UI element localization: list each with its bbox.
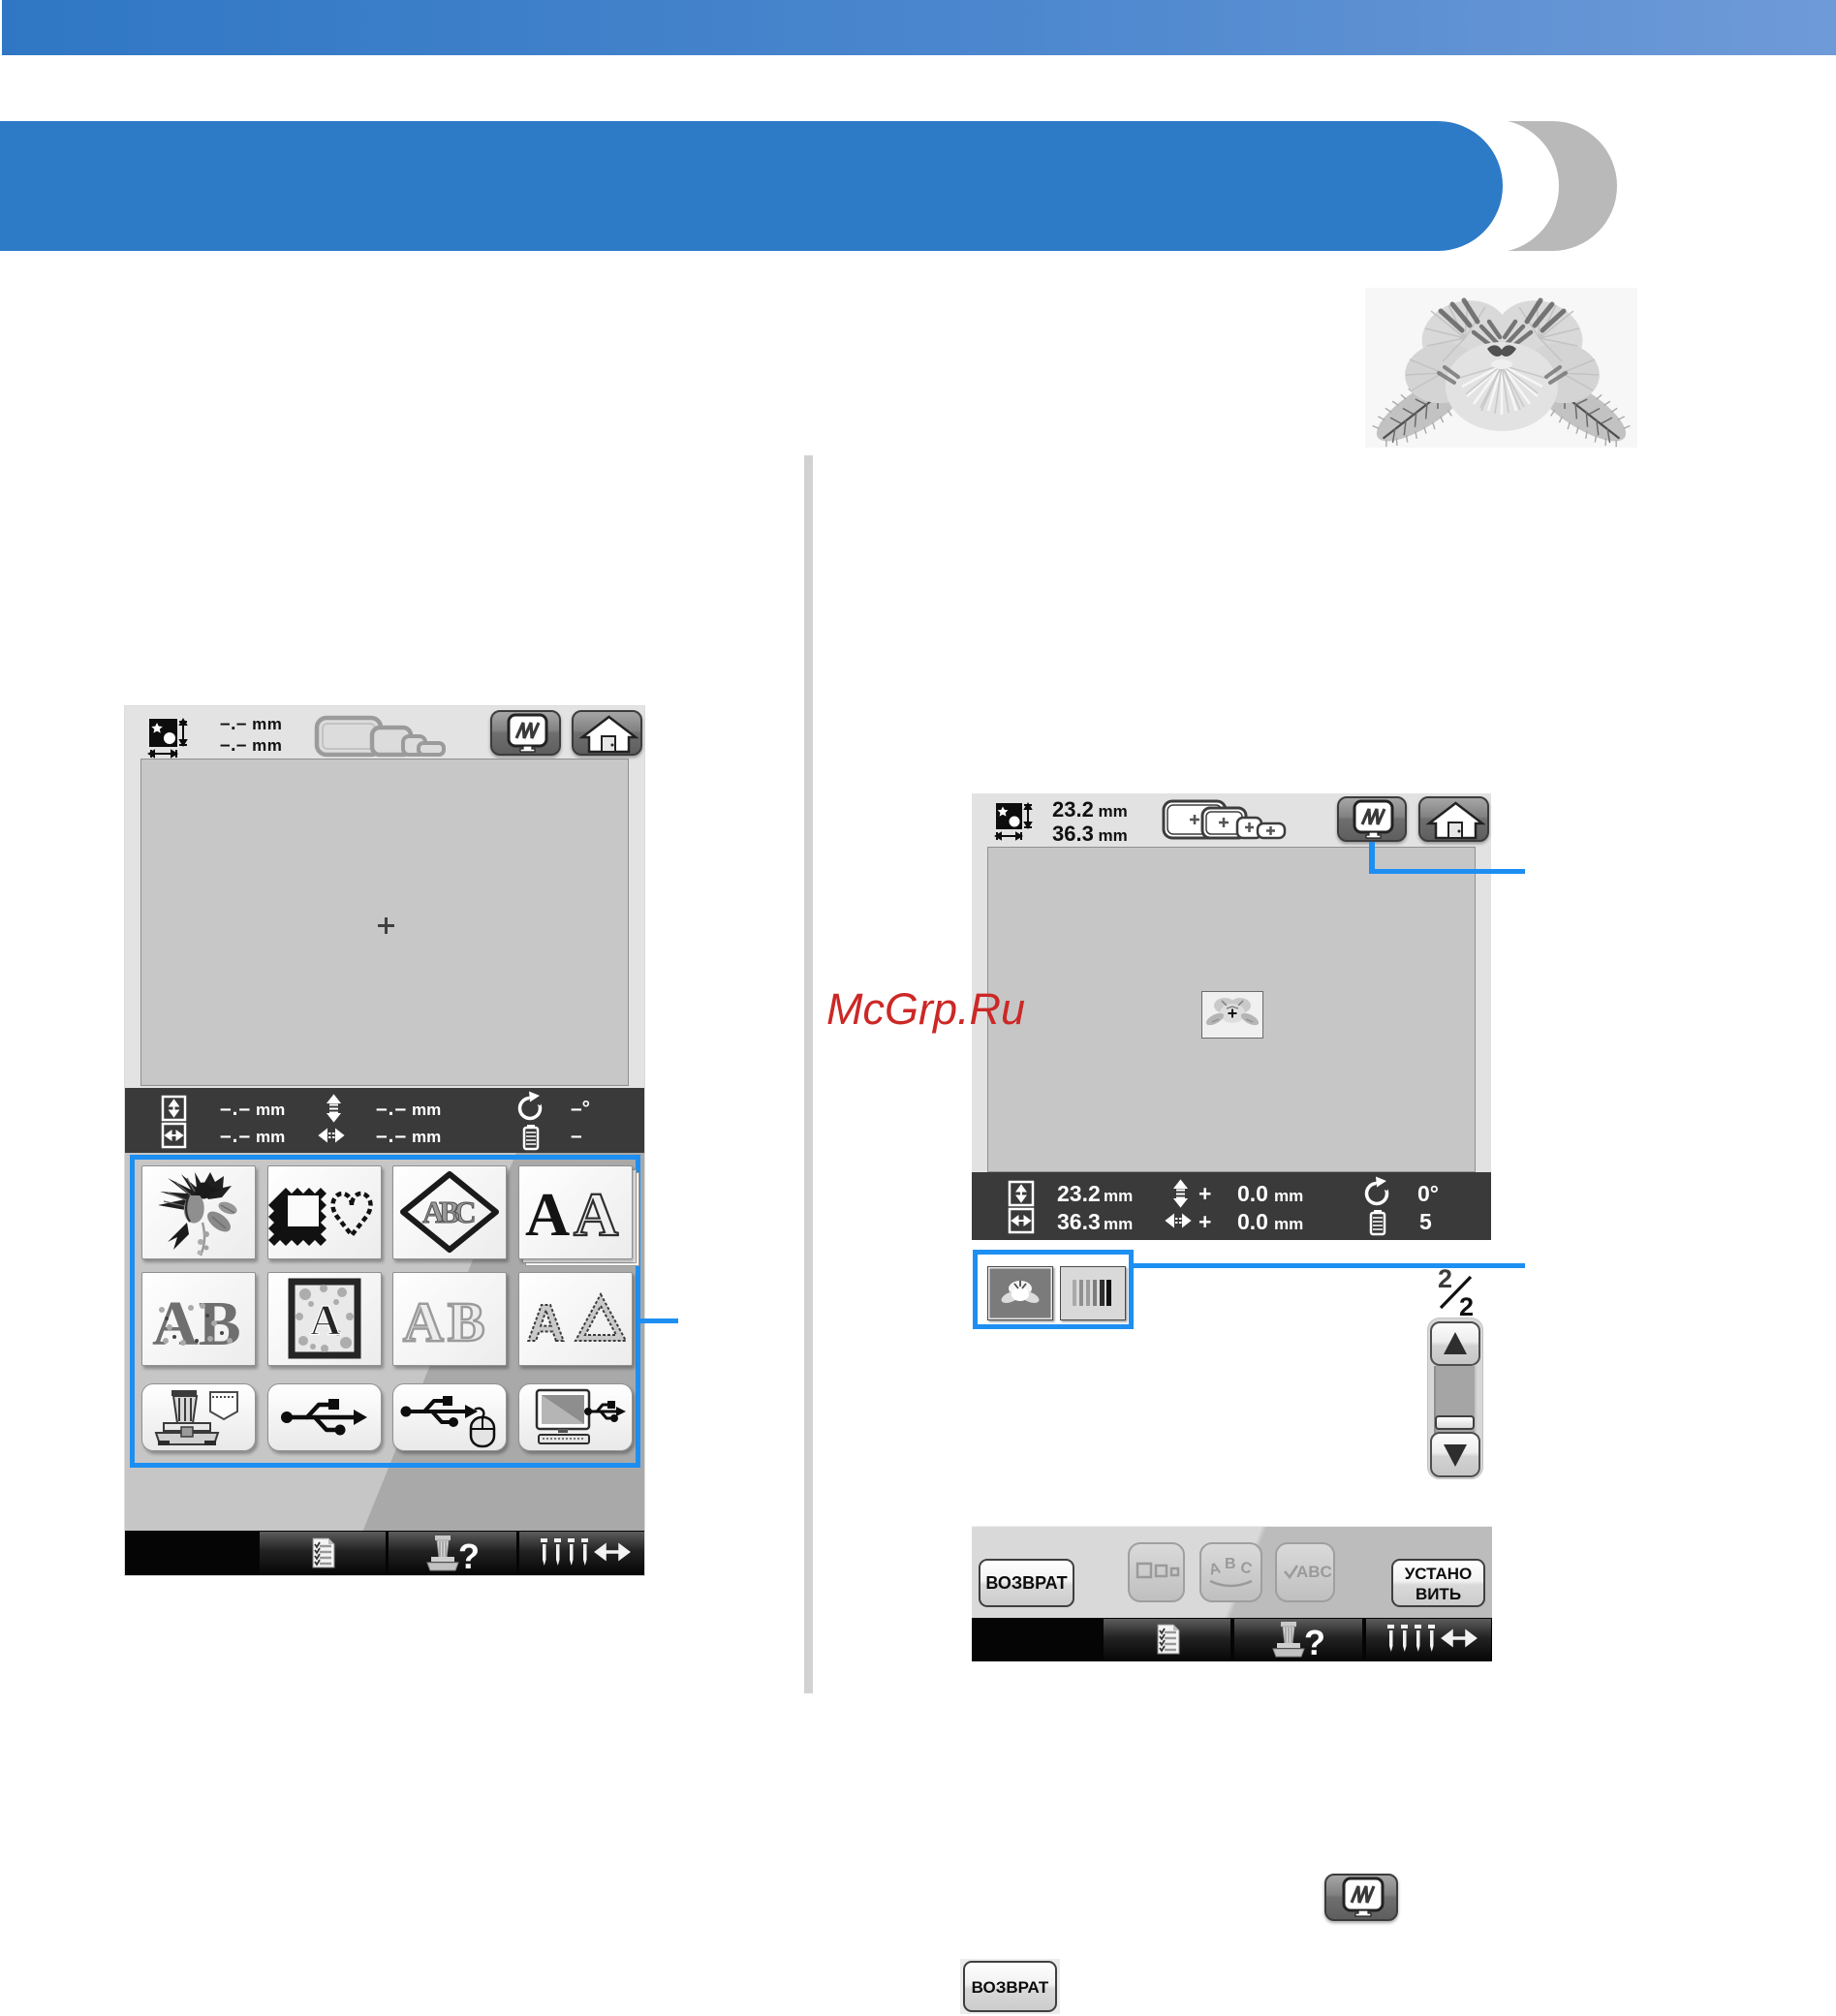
svg-text:ABC: ABC — [1296, 1563, 1332, 1581]
svg-text:2: 2 — [1438, 1265, 1452, 1293]
svg-text:23.2: 23.2 — [1057, 1181, 1101, 1206]
svg-text:AB: AB — [403, 1290, 489, 1353]
svg-text:+: + — [1198, 1209, 1211, 1234]
svg-text:mm: mm — [1104, 1215, 1133, 1233]
svg-text:–.–: –.– — [376, 1125, 407, 1147]
svg-text:+: + — [1198, 1181, 1211, 1206]
svg-text:A: A — [1207, 1560, 1223, 1578]
svg-text:mm: mm — [256, 1101, 285, 1119]
svg-text:B: B — [1225, 1556, 1236, 1572]
svg-text:–°: –° — [571, 1098, 590, 1120]
svg-text:mm: mm — [1104, 1187, 1133, 1205]
svg-text:C: C — [1238, 1559, 1254, 1577]
svg-text:36.3: 36.3 — [1057, 1209, 1101, 1234]
svg-text:mm: mm — [256, 1128, 285, 1146]
svg-text:0°: 0° — [1417, 1181, 1439, 1206]
svg-text:?: ? — [1304, 1623, 1325, 1660]
svg-text:–: – — [571, 1125, 582, 1147]
svg-text:A: A — [574, 1180, 618, 1249]
svg-text:A: A — [310, 1296, 341, 1344]
svg-text:ABC: ABC — [422, 1194, 474, 1229]
svg-text:mm: mm — [412, 1101, 441, 1119]
svg-text:0.0: 0.0 — [1237, 1209, 1268, 1234]
svg-text:5: 5 — [1419, 1209, 1432, 1234]
svg-text:AB: AB — [152, 1288, 241, 1359]
svg-text:–.–: –.– — [376, 1098, 407, 1120]
svg-text:0.0: 0.0 — [1237, 1181, 1268, 1206]
svg-text:–.–: –.– — [220, 1125, 251, 1147]
svg-text:mm: mm — [1274, 1187, 1303, 1205]
svg-text:A: A — [527, 1294, 565, 1352]
svg-text:?: ? — [458, 1536, 480, 1574]
svg-text:mm: mm — [1274, 1215, 1303, 1233]
svg-text:A: A — [525, 1180, 570, 1249]
svg-text:mm: mm — [412, 1128, 441, 1146]
svg-text:–.–: –.– — [220, 1098, 251, 1120]
